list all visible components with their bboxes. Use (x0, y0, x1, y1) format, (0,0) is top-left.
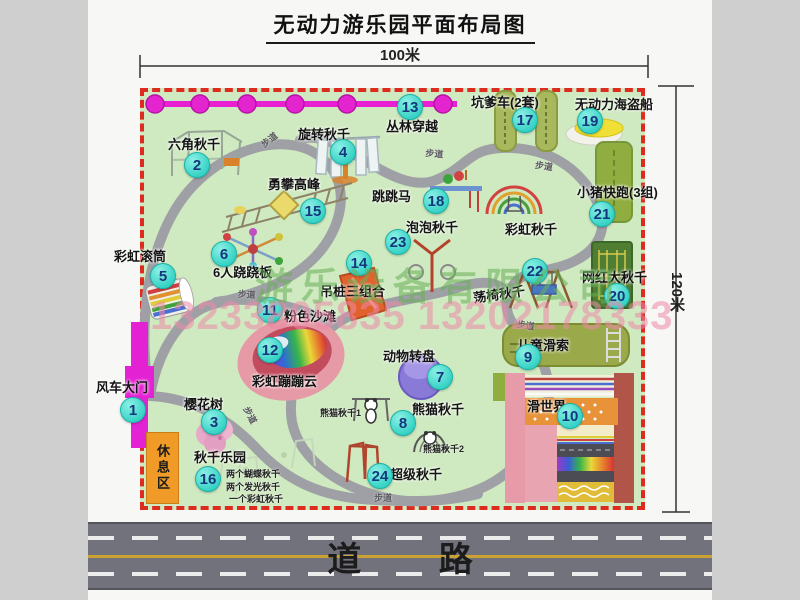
windmill-gate-base-icon (125, 366, 154, 398)
rest-area: 休息区 (146, 432, 179, 504)
dimension-height-label: 120米 (666, 272, 687, 312)
road: 道 路 (88, 522, 712, 590)
screenshot-stage: 无动力游乐园平面布局图 100米 120米 休息区 (0, 0, 800, 600)
road-label: 道 路 (88, 524, 712, 588)
park-area (140, 88, 645, 510)
page-title: 无动力游乐园平面布局图 (266, 9, 535, 44)
rest-area-label: 休息区 (153, 444, 172, 492)
dimension-width-label: 100米 (350, 44, 450, 65)
